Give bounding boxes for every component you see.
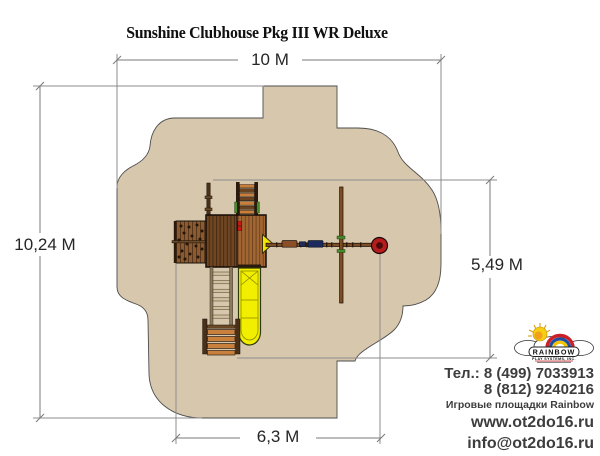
swing-seat-blue: [308, 241, 323, 248]
logo-subtitle-text: PLAY SYSTEMS, INC.: [532, 357, 576, 361]
logo-brand-text: RAINBOW: [533, 347, 576, 356]
logo-fineprint-bar: [537, 362, 571, 363]
dimension-overall-width: 10 M: [238, 51, 302, 69]
a-frame-crossbeam: [340, 187, 343, 303]
plan-page: Sunshine Clubhouse Pkg III WR Deluxe: [0, 0, 600, 456]
dimension-structure-width: 6,3 M: [240, 428, 316, 446]
phone-line-1: Тел.: 8 (499) 7033913: [444, 366, 594, 382]
clubhouse-deck: [206, 215, 266, 267]
contact-caption: Игровые площадки Rainbow: [444, 399, 594, 411]
safety-zone-area: [117, 86, 441, 418]
rock-climbing-wall: [172, 221, 209, 263]
tube-slide: [238, 265, 261, 346]
email-text: info@ot2do16.ru: [444, 435, 594, 453]
swing-seat-wood: [282, 241, 297, 248]
rainbow-logo: RAINBOW PLAY SYSTEMS, INC.: [512, 321, 596, 363]
contact-block: Тел.: 8 (499) 7033913 8 (812) 9240216 Иг…: [444, 366, 594, 452]
phone-line-2: 8 (812) 9240216: [444, 382, 594, 398]
website-text: www.ot2do16.ru: [444, 414, 594, 432]
dimension-overall-depth: 10,24 M: [5, 236, 85, 254]
dimension-structure-depth: 5,49 M: [460, 256, 534, 274]
entry-ladder: [235, 182, 260, 216]
